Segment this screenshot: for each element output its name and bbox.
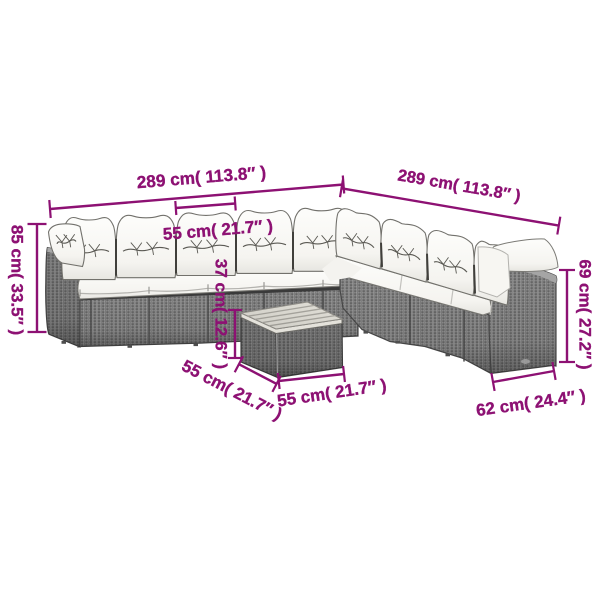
svg-text:69 cm( 27.2″ ): 69 cm( 27.2″ ) xyxy=(576,259,595,369)
svg-text:37 cm( 12.6″ ): 37 cm( 12.6″ ) xyxy=(212,259,231,369)
svg-text:85 cm( 33.5″ ): 85 cm( 33.5″ ) xyxy=(8,225,27,335)
